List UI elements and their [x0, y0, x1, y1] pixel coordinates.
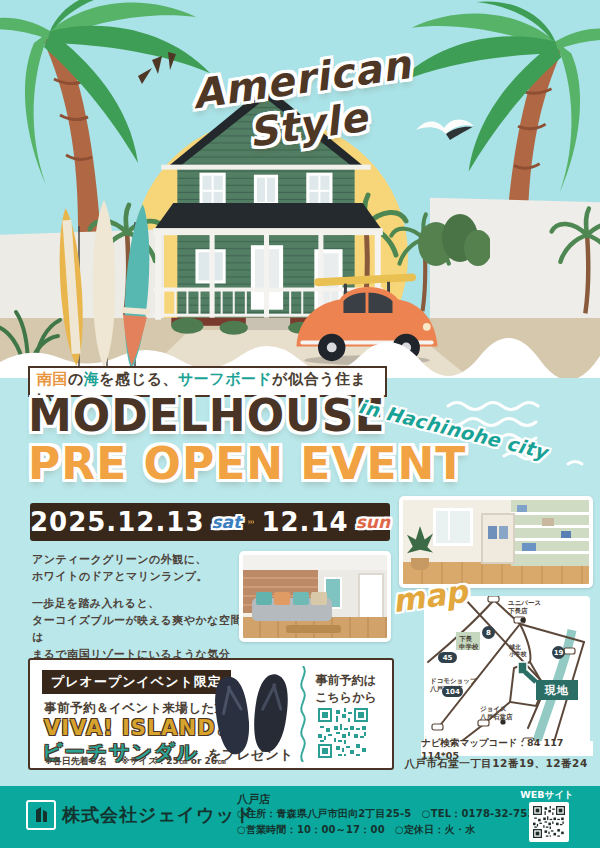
footer: 株式会社ジェイウッド 八戸店 ○住所：青森県八戸市田向2丁目25-5 ○TEL：…: [0, 786, 600, 848]
site-address: 八戸市石堂一丁目12番19、12番24: [396, 757, 596, 771]
wavy-divider-icon: [296, 666, 310, 762]
shelf-wall: [511, 500, 589, 566]
main-title-line1: MODELHOUSE: [28, 392, 386, 439]
web-qr-code: [533, 806, 565, 838]
company-name: 株式会社ジェイウッド: [62, 803, 255, 827]
reserve-label: 事前予約は こちらから: [310, 672, 382, 707]
shop-address-tel: ○住所：青森県八戸市田向2丁目25-5 ○TEL：0178-32-7530: [237, 807, 542, 821]
pre-open-event-box: プレオープンイベント限定 事前予約＆イベント来場した方に VIVA! ISLAN…: [28, 658, 394, 770]
shop-name: 八戸店: [237, 792, 270, 807]
shop-hours: ○営業時間：10：00～17：00 ○定休日：火・水: [237, 823, 475, 837]
scene-palm-icon: [548, 200, 600, 320]
route-badge: 45: [438, 652, 457, 663]
surfboards-illustration: [46, 176, 162, 376]
landmark-label: ジョイス 八戸石堂店: [480, 706, 513, 722]
main-title-line2: PRE OPEN EVENT: [28, 440, 466, 487]
trees-icon: [418, 210, 490, 270]
route-badge: 104: [442, 686, 463, 697]
company-logo-icon: [26, 800, 56, 830]
hero-illustration: American Style: [0, 0, 600, 378]
reserve-qr-code: [318, 708, 368, 758]
web-qr-card: [529, 802, 569, 842]
closet: [481, 513, 515, 564]
interior-photo-shelf-room: [399, 496, 593, 588]
window: [433, 508, 473, 546]
table: [286, 625, 341, 633]
web-label: WEBサイト: [516, 789, 578, 802]
tagline-part: 海: [84, 370, 100, 388]
sofa: [252, 598, 333, 621]
route-badge: 8: [482, 626, 495, 639]
day-sat: sat: [211, 512, 241, 532]
landmark-label: ユニバース 下長店: [508, 600, 541, 616]
route-badge: 19: [552, 646, 565, 659]
tagline-part: サーフボード: [178, 370, 272, 388]
site-label: 現地: [536, 680, 578, 700]
tagline-part: の: [68, 370, 84, 388]
note-limit: ※各日先着５名: [44, 755, 107, 768]
white-door: [358, 573, 384, 620]
date-end: 12.14: [261, 507, 348, 537]
flyer: American Style 南国の海を感じる、サーフボードが似合う住まい。 M…: [0, 0, 600, 848]
interior-photo-living-room: [239, 551, 391, 642]
landmark-label: 城北 小学校: [509, 645, 527, 659]
event-badge: プレオープンイベント限定: [42, 670, 231, 694]
brand-name: VIVA! ISLANDの: [44, 716, 232, 740]
date-bar: 2025.12.13 sat 12.14 sun: [30, 503, 390, 541]
date-start: 2025.12.13: [30, 507, 204, 537]
event-notes: ※各日先着５名 ※サイズ：25㎝ or 26㎝: [44, 755, 226, 768]
navi-map-code: ナビ検索マップコード：84 117 114*05: [421, 741, 593, 756]
area-map: ユニバース 下長店 下長 中学校 ドコモショップ 八戸下長店 ジョイス 八戸石堂…: [424, 596, 590, 744]
tagline-part: を感じる、: [99, 370, 178, 388]
day-sun: sun: [356, 512, 390, 532]
beach-sandals-image: [212, 668, 296, 760]
triple-chevron-icon: [248, 512, 254, 532]
note-size: ※サイズ：25㎝ or 26㎝: [121, 755, 226, 768]
copy-paragraph: アンティークグリーンの外観に、ホワイトのドアとマリンランプ。: [32, 551, 247, 585]
landmark-label: 下長 中学校: [459, 636, 479, 652]
tagline-part: 南国: [37, 370, 68, 388]
map-roads: [424, 596, 590, 744]
